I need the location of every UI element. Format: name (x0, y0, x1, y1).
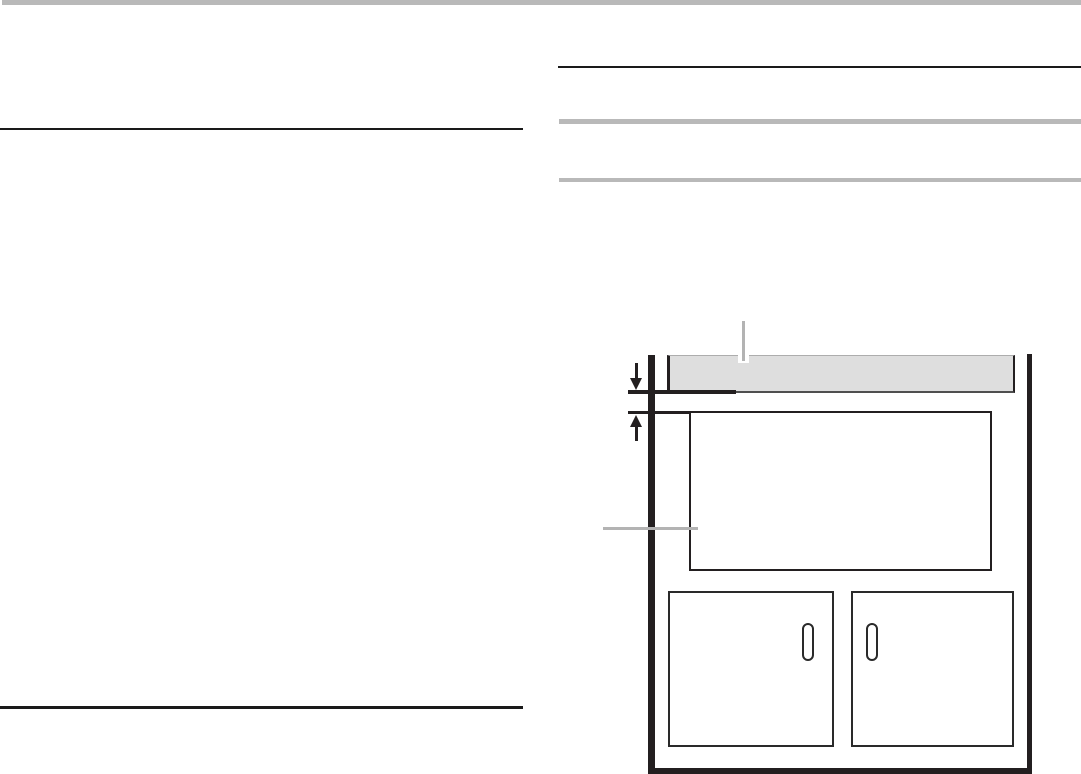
cabinet-door-left (668, 591, 834, 747)
cabinet-bottom-rail (648, 768, 1032, 774)
cutout-opening (689, 411, 992, 571)
dimension-arrow-up-icon (630, 415, 642, 427)
dimension-arrow-down-icon (630, 378, 642, 390)
clearance-dimension-line (628, 390, 736, 394)
cabinet-door-right (851, 591, 1014, 747)
cabinet-left-wall (648, 355, 655, 774)
counter-strip-callout-leader-tip (742, 321, 745, 361)
right-column-header-bar-1 (559, 119, 1081, 124)
manual-page (0, 0, 1081, 774)
cabinet-right-wall (1027, 354, 1033, 774)
dimension-arrow-up-shaft (635, 426, 638, 441)
cutout-callout-leader (603, 527, 698, 530)
right-column-header-bar-2 (559, 178, 1081, 183)
left-column-section-rule-bottom (0, 706, 523, 709)
door-handle-left-icon (802, 623, 815, 661)
page-top-bar (2, 0, 1081, 5)
right-column-section-rule (558, 66, 1081, 68)
dimension-arrow-down-shaft (635, 363, 638, 379)
counter-strip (667, 355, 1015, 393)
left-column-section-rule-top (0, 128, 523, 131)
door-handle-right-icon (866, 623, 879, 661)
